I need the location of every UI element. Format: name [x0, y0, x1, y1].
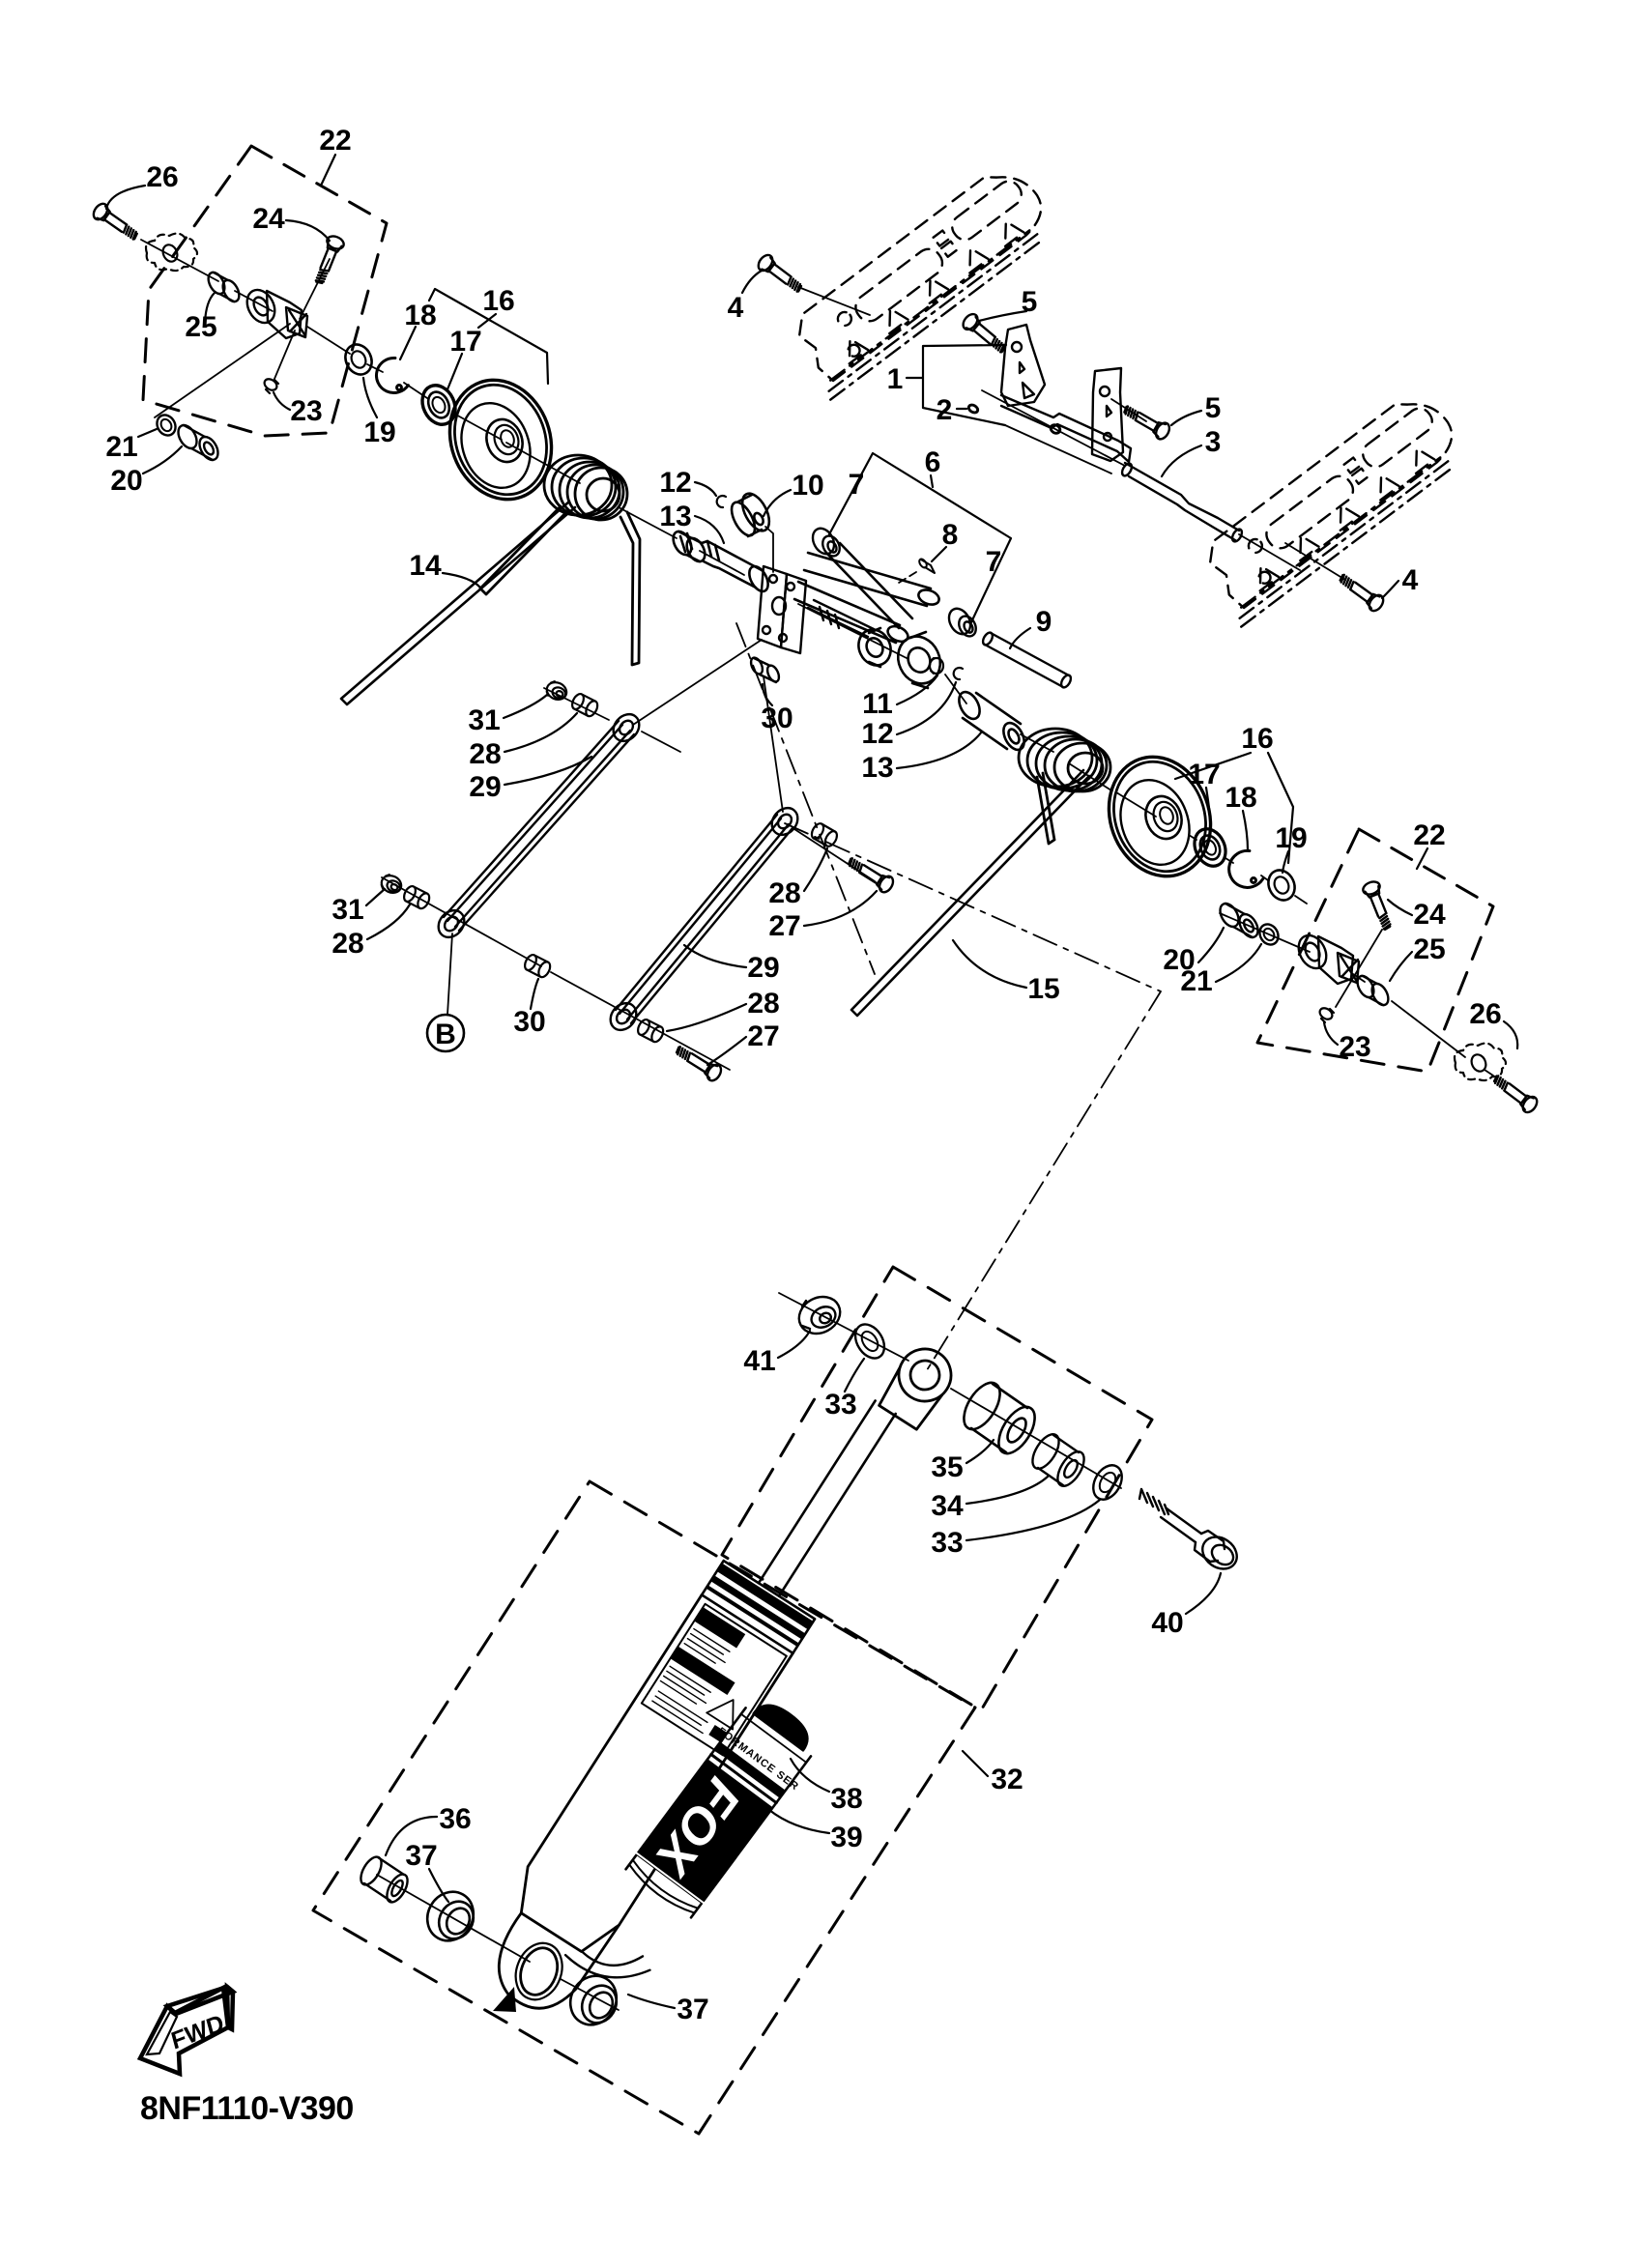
svg-text:11: 11 [862, 688, 893, 720]
svg-text:23: 23 [1339, 1031, 1370, 1063]
svg-text:27: 27 [768, 910, 800, 942]
svg-text:12: 12 [659, 467, 691, 499]
svg-text:17: 17 [1188, 759, 1220, 790]
svg-text:17: 17 [449, 326, 481, 358]
svg-text:32: 32 [991, 1764, 1023, 1795]
svg-text:28: 28 [747, 988, 779, 1019]
svg-text:13: 13 [861, 752, 893, 784]
svg-text:1: 1 [887, 363, 904, 395]
svg-text:10: 10 [792, 470, 823, 502]
svg-text:22: 22 [319, 125, 351, 157]
svg-text:16: 16 [482, 285, 514, 317]
svg-text:2: 2 [937, 394, 953, 426]
svg-text:36: 36 [439, 1803, 471, 1835]
svg-text:28: 28 [469, 738, 501, 770]
svg-text:5: 5 [1205, 392, 1222, 424]
svg-text:30: 30 [761, 703, 793, 734]
svg-text:24: 24 [252, 203, 285, 235]
svg-text:28: 28 [331, 928, 363, 960]
svg-text:24: 24 [1413, 899, 1446, 931]
svg-text:34: 34 [931, 1490, 964, 1522]
svg-text:19: 19 [1275, 822, 1307, 854]
svg-text:25: 25 [1413, 933, 1445, 965]
svg-text:22: 22 [1413, 819, 1445, 851]
svg-text:37: 37 [677, 1994, 708, 2025]
svg-text:13: 13 [659, 501, 691, 532]
svg-text:20: 20 [110, 465, 142, 497]
svg-text:5: 5 [1022, 286, 1038, 318]
svg-text:6: 6 [925, 446, 941, 478]
svg-text:29: 29 [469, 771, 501, 803]
svg-text:26: 26 [146, 161, 178, 193]
svg-text:21: 21 [1180, 965, 1212, 997]
svg-text:23: 23 [290, 395, 322, 427]
svg-text:B: B [435, 1019, 456, 1050]
svg-text:15: 15 [1027, 973, 1059, 1005]
svg-text:35: 35 [931, 1451, 963, 1483]
svg-text:16: 16 [1241, 723, 1273, 755]
svg-text:30: 30 [513, 1006, 545, 1038]
svg-text:19: 19 [363, 416, 395, 448]
svg-text:33: 33 [824, 1389, 856, 1421]
svg-text:18: 18 [404, 300, 436, 331]
svg-text:29: 29 [747, 952, 779, 984]
svg-text:4: 4 [728, 292, 744, 324]
svg-text:31: 31 [468, 704, 500, 736]
svg-text:7: 7 [986, 546, 1002, 578]
svg-text:28: 28 [768, 877, 800, 909]
svg-text:9: 9 [1036, 606, 1052, 638]
svg-text:12: 12 [861, 718, 893, 750]
svg-text:37: 37 [405, 1840, 437, 1872]
svg-text:40: 40 [1151, 1607, 1183, 1639]
svg-text:38: 38 [830, 1783, 862, 1815]
svg-text:25: 25 [185, 311, 216, 343]
svg-text:7: 7 [849, 469, 865, 501]
svg-text:31: 31 [331, 894, 363, 926]
svg-text:4: 4 [1402, 564, 1419, 596]
svg-text:27: 27 [747, 1020, 779, 1052]
svg-text:39: 39 [830, 1822, 862, 1853]
svg-text:8: 8 [942, 519, 959, 551]
svg-text:26: 26 [1469, 998, 1501, 1030]
svg-text:41: 41 [743, 1345, 775, 1377]
svg-text:14: 14 [409, 550, 442, 582]
svg-text:21: 21 [105, 431, 137, 463]
svg-text:33: 33 [931, 1527, 963, 1559]
svg-text:18: 18 [1225, 782, 1256, 814]
svg-text:3: 3 [1205, 426, 1222, 458]
svg-text:8NF1110-V390: 8NF1110-V390 [140, 2090, 354, 2127]
